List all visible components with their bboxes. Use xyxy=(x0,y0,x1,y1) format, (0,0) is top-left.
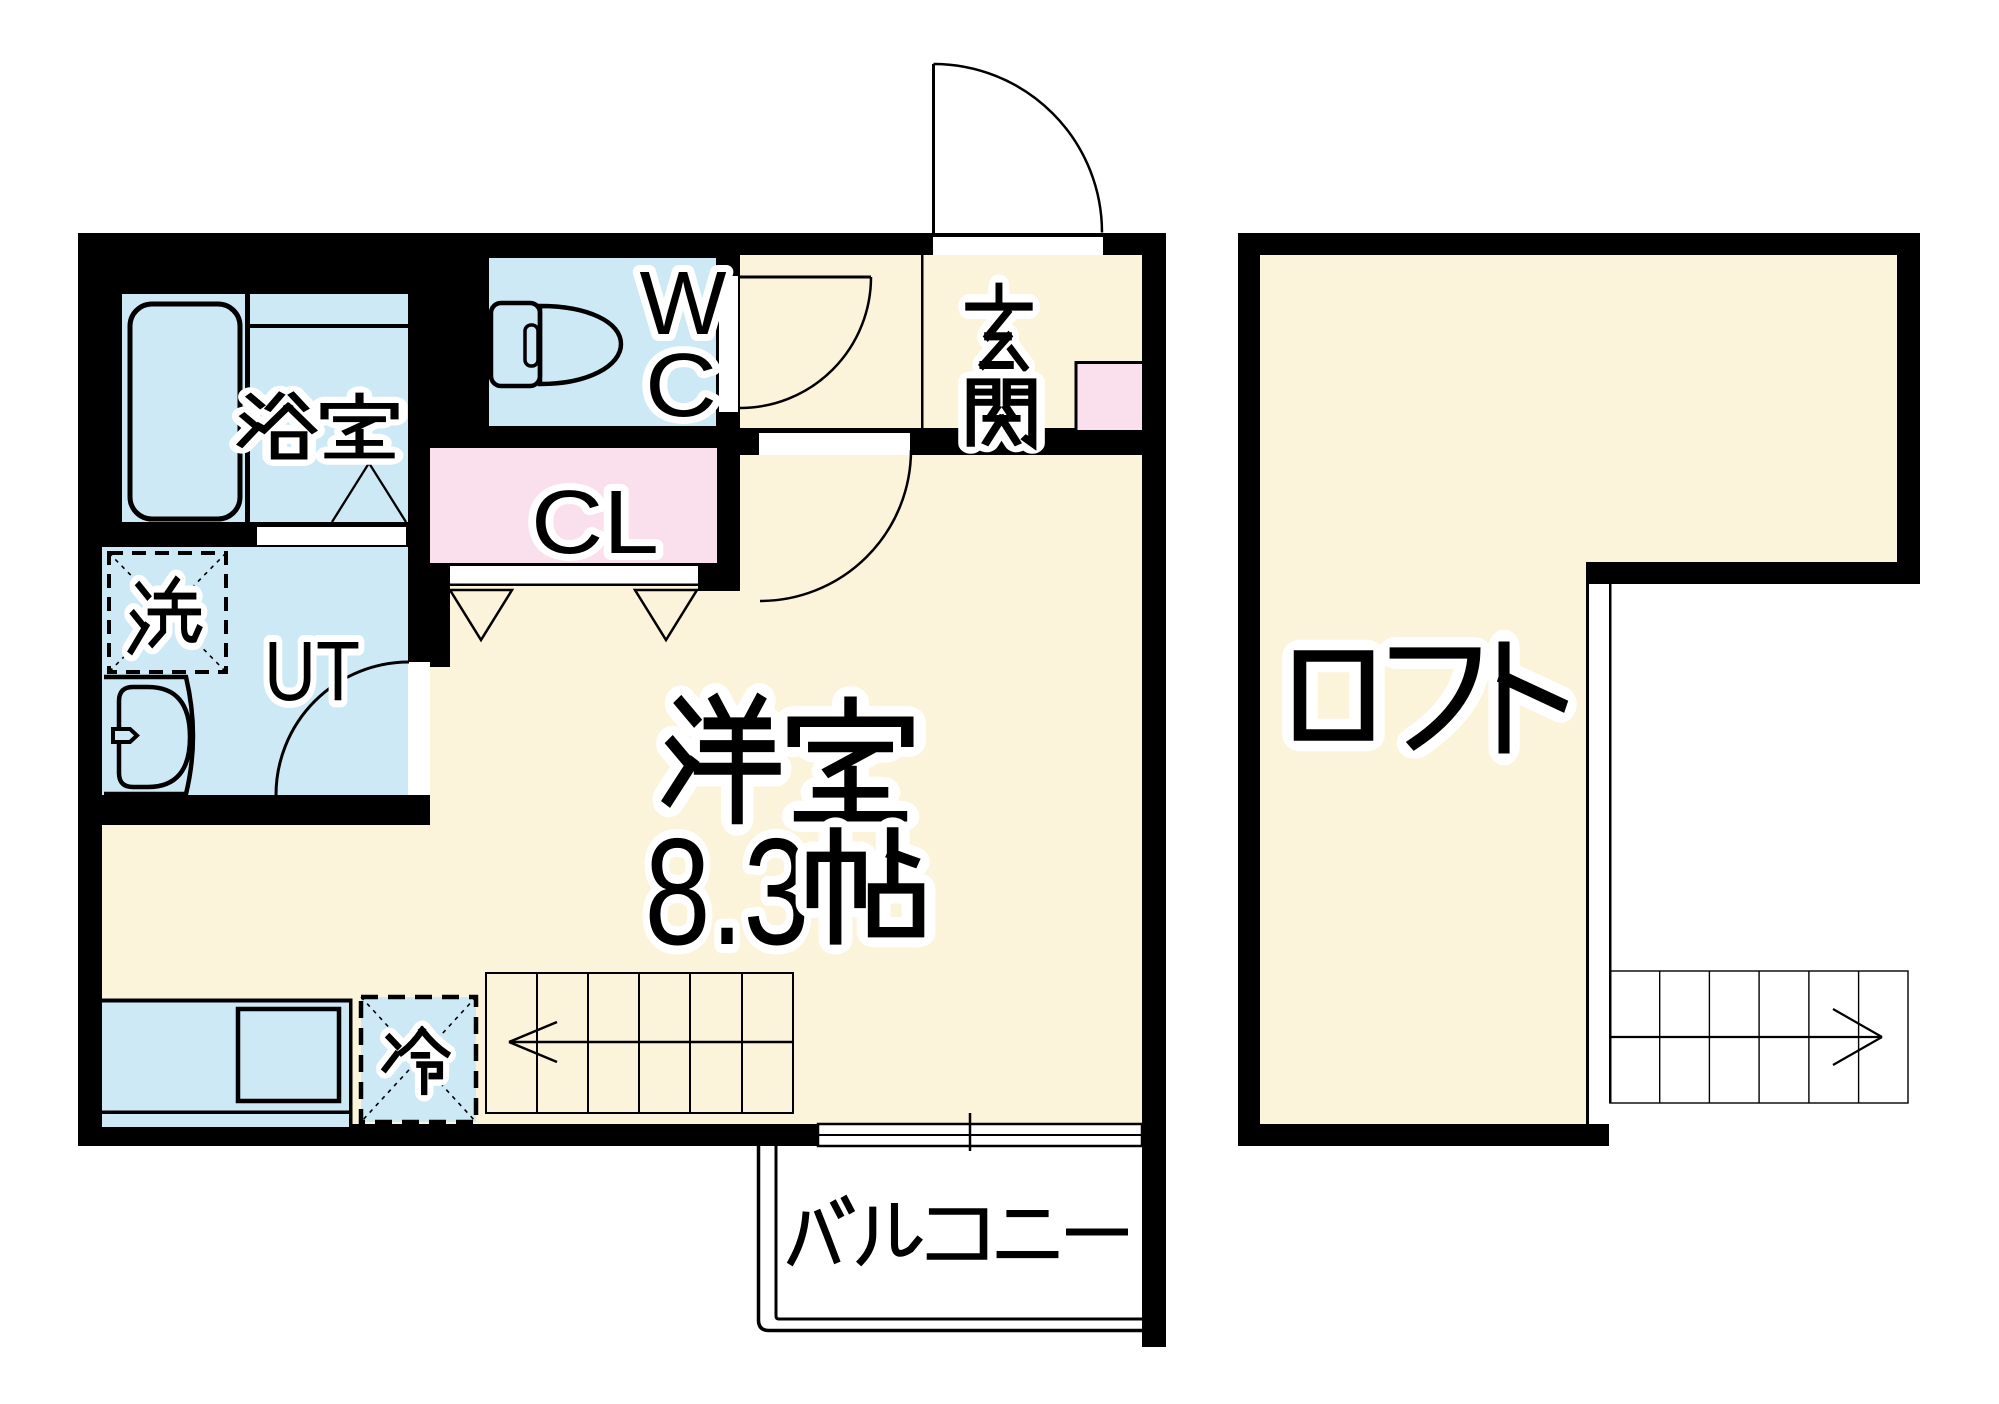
svg-text:C: C xyxy=(645,336,717,436)
svg-text:CL: CL xyxy=(531,473,659,573)
svg-text:8.3: 8.3 xyxy=(645,807,810,977)
svg-text:UT: UT xyxy=(264,624,360,718)
